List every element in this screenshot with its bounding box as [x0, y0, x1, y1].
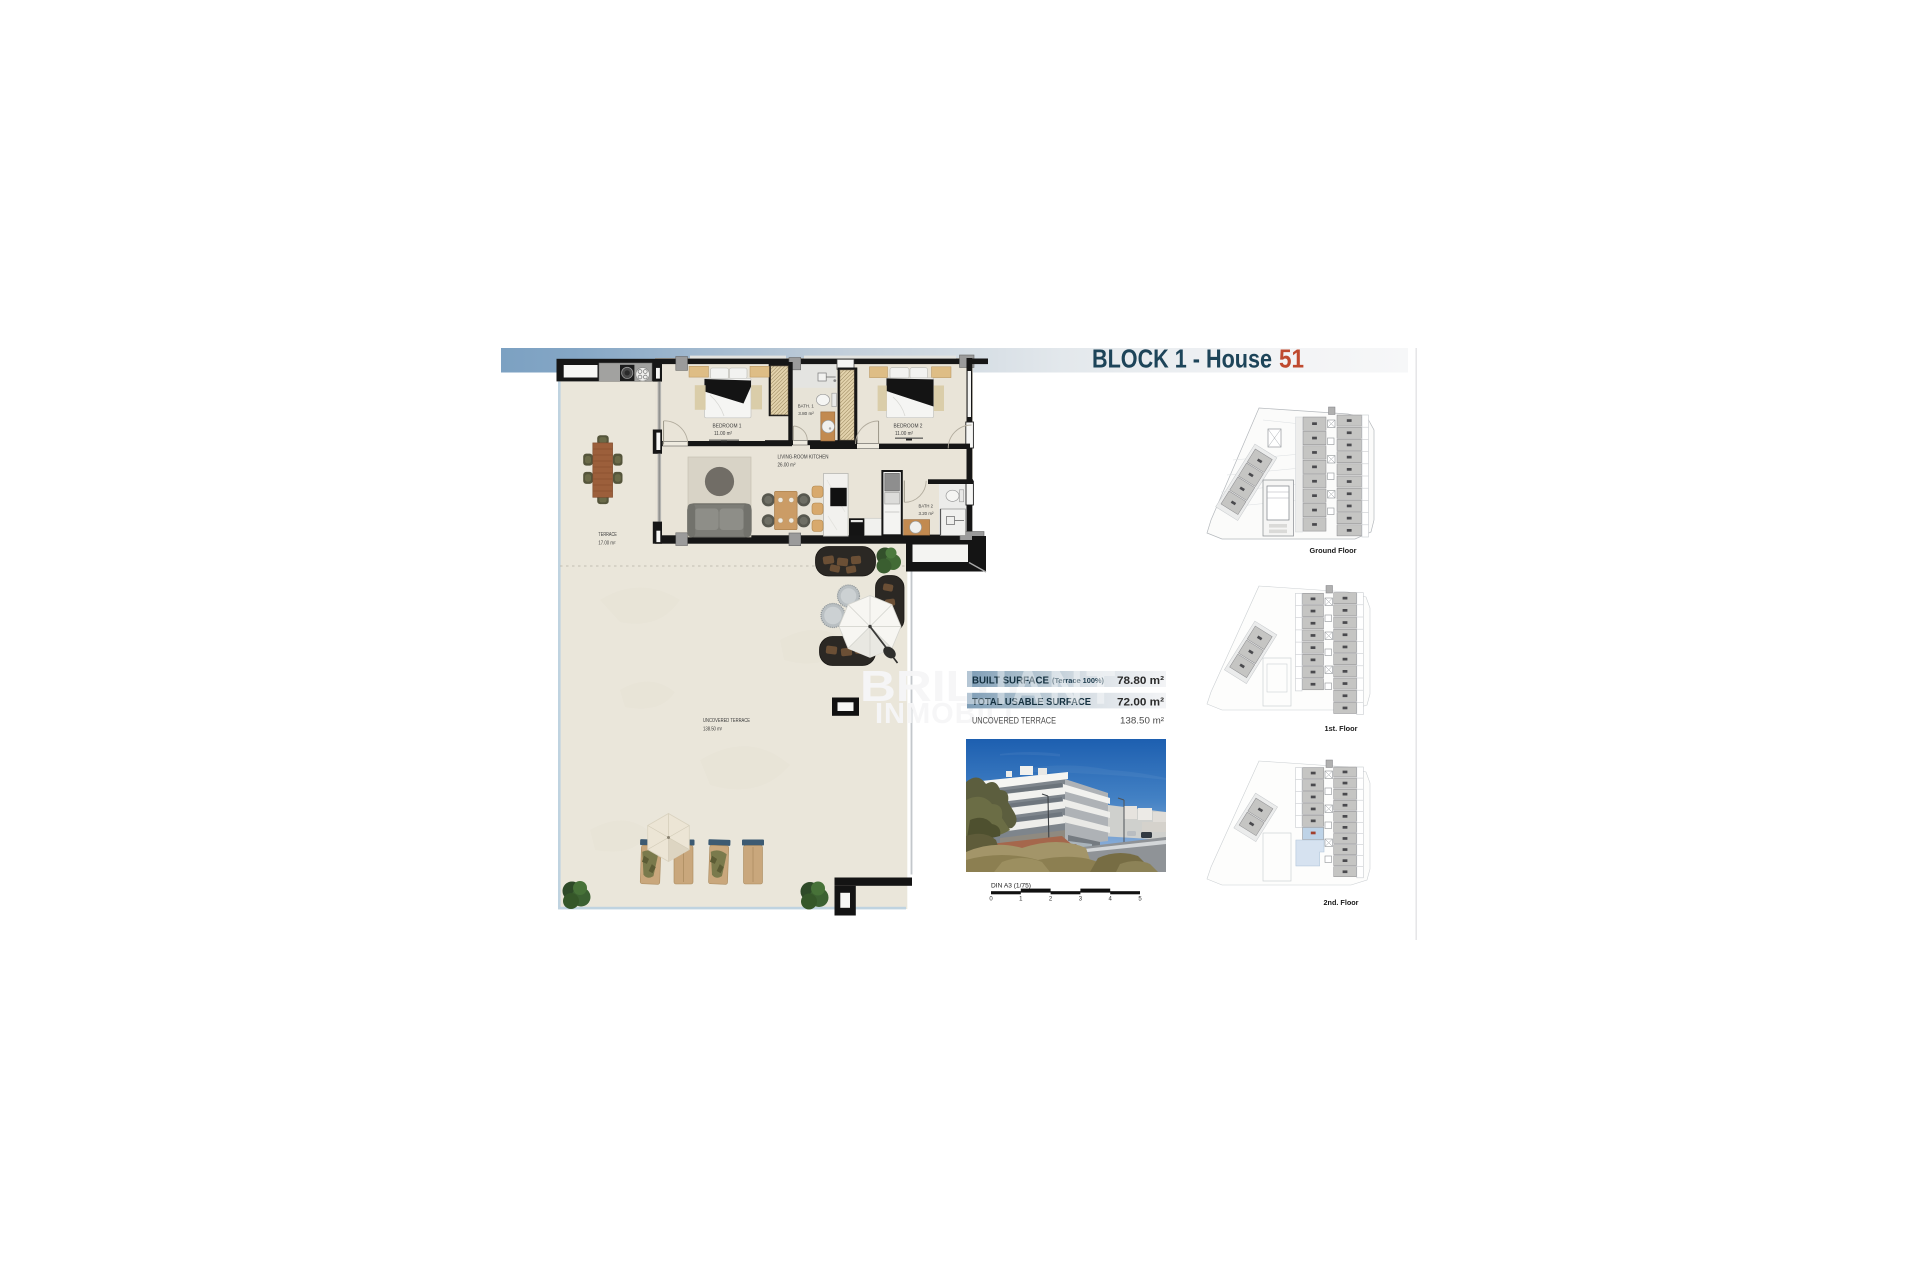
- svg-text:1st. Floor: 1st. Floor: [1325, 724, 1358, 733]
- svg-text:26.00 m²: 26.00 m²: [778, 463, 796, 469]
- svg-text:LIVING-ROOM KITCHEN: LIVING-ROOM KITCHEN: [778, 455, 829, 461]
- svg-text:BATH. 1: BATH. 1: [798, 404, 814, 410]
- svg-text:BATH 2: BATH 2: [919, 504, 934, 510]
- svg-text:78.80 m²: 78.80 m²: [1117, 675, 1164, 687]
- svg-text:BEDROOM 2: BEDROOM 2: [894, 424, 923, 430]
- svg-text:LIANT: LIANT: [962, 662, 1118, 715]
- svg-text:11.00 m²: 11.00 m²: [895, 431, 913, 437]
- svg-text:138.50 m²: 138.50 m²: [1120, 716, 1164, 726]
- svg-text:BEDROOM 1: BEDROOM 1: [713, 424, 742, 430]
- svg-text:2nd. Floor: 2nd. Floor: [1324, 898, 1359, 907]
- svg-text:TERRACE: TERRACE: [598, 532, 617, 538]
- svg-text:51: 51: [1279, 344, 1304, 374]
- svg-text:UNCOVERED TERRACE: UNCOVERED TERRACE: [703, 718, 751, 724]
- svg-text:138.50 m²: 138.50 m²: [703, 727, 722, 733]
- svg-text:3.20 m²: 3.20 m²: [919, 511, 934, 517]
- svg-text:Ground Floor: Ground Floor: [1310, 546, 1357, 555]
- svg-text:17.00 m²: 17.00 m²: [598, 541, 615, 547]
- svg-text:11.00 m²: 11.00 m²: [714, 431, 732, 437]
- svg-text:72.00 m²: 72.00 m²: [1117, 697, 1164, 709]
- svg-text:UNCOVERED TERRACE: UNCOVERED TERRACE: [972, 716, 1056, 726]
- svg-text:3.80 m²: 3.80 m²: [798, 411, 814, 417]
- svg-text:DIN A3 (1/75): DIN A3 (1/75): [991, 883, 1031, 890]
- svg-text:BLOCK 1 - House: BLOCK 1 - House: [1092, 344, 1272, 374]
